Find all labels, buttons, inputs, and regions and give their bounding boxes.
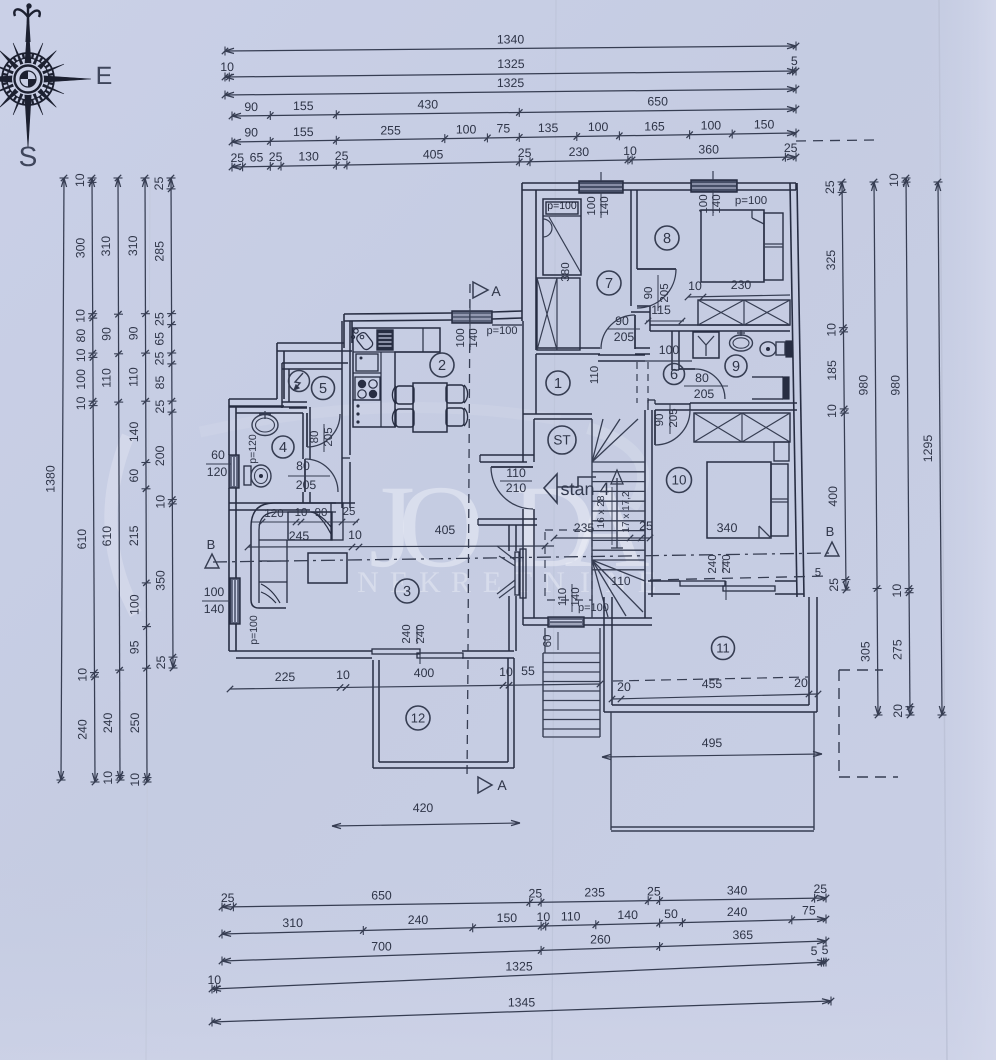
svg-text:ST: ST <box>553 433 570 448</box>
svg-text:20: 20 <box>794 676 808 690</box>
svg-text:10: 10 <box>824 323 838 337</box>
svg-text:10: 10 <box>499 665 513 679</box>
svg-text:5: 5 <box>811 944 818 958</box>
svg-text:N: N <box>357 566 379 599</box>
svg-text:25: 25 <box>823 180 837 194</box>
svg-text:11: 11 <box>716 641 730 656</box>
svg-text:p=100: p=100 <box>248 615 260 645</box>
svg-text:65: 65 <box>250 151 264 165</box>
svg-text:100: 100 <box>455 328 467 347</box>
svg-text:110: 110 <box>611 574 630 588</box>
svg-text:B: B <box>207 537 216 552</box>
svg-text:205: 205 <box>694 387 715 401</box>
svg-text:245: 245 <box>289 529 310 543</box>
svg-text:240: 240 <box>401 624 413 643</box>
svg-text:140: 140 <box>617 908 638 922</box>
svg-text:20: 20 <box>891 704 905 718</box>
svg-text:60: 60 <box>542 635 554 648</box>
svg-text:50: 50 <box>664 907 678 921</box>
svg-text:110: 110 <box>589 366 601 384</box>
svg-text:340: 340 <box>727 883 748 897</box>
svg-text:155: 155 <box>293 99 314 113</box>
svg-text:305: 305 <box>859 641 873 662</box>
svg-text:10: 10 <box>207 973 221 987</box>
svg-text:85: 85 <box>153 376 167 390</box>
svg-text:400: 400 <box>826 486 840 507</box>
svg-text:25: 25 <box>639 519 653 533</box>
svg-text:S: S <box>19 141 38 172</box>
svg-text:610: 610 <box>100 526 114 547</box>
svg-text:210: 210 <box>506 481 527 495</box>
svg-text:1345: 1345 <box>508 996 536 1010</box>
svg-text:230: 230 <box>569 145 590 159</box>
svg-text:95: 95 <box>128 640 142 654</box>
svg-text:1325: 1325 <box>505 960 533 974</box>
svg-text:10: 10 <box>671 473 686 488</box>
svg-text:4: 4 <box>279 440 287 456</box>
svg-text:650: 650 <box>371 889 392 903</box>
svg-text:5: 5 <box>815 567 821 579</box>
svg-text:16 x 28: 16 x 28 <box>596 495 607 528</box>
svg-text:205: 205 <box>668 408 680 427</box>
svg-text:405: 405 <box>435 523 456 537</box>
svg-text:75: 75 <box>802 903 816 917</box>
svg-text:100: 100 <box>659 343 680 357</box>
svg-text:25: 25 <box>153 400 167 414</box>
svg-text:90: 90 <box>315 507 328 519</box>
svg-text:10: 10 <box>825 404 839 418</box>
svg-text:300: 300 <box>73 238 87 259</box>
svg-text:205: 205 <box>614 330 635 344</box>
svg-text:240: 240 <box>707 554 719 573</box>
svg-text:135: 135 <box>538 121 559 135</box>
svg-text:350: 350 <box>154 570 168 591</box>
svg-text:p=100: p=100 <box>487 325 518 337</box>
svg-text:980: 980 <box>857 375 871 396</box>
svg-text:100: 100 <box>588 120 609 134</box>
svg-text:1: 1 <box>554 376 562 392</box>
svg-text:90: 90 <box>244 100 258 114</box>
svg-text:E: E <box>96 62 113 90</box>
svg-text:240: 240 <box>76 719 90 740</box>
svg-text:240: 240 <box>721 554 733 573</box>
svg-text:90: 90 <box>643 287 655 300</box>
svg-text:8: 8 <box>663 231 671 247</box>
svg-text:275: 275 <box>891 639 905 660</box>
svg-text:1380: 1380 <box>44 465 58 493</box>
svg-text:90: 90 <box>127 326 141 340</box>
svg-text:360: 360 <box>698 143 719 157</box>
svg-text:25: 25 <box>230 151 244 165</box>
svg-text:10: 10 <box>101 771 115 785</box>
svg-text:K: K <box>419 566 441 599</box>
svg-text:25: 25 <box>335 149 349 163</box>
svg-text:205: 205 <box>296 478 317 492</box>
svg-text:9: 9 <box>732 359 740 375</box>
svg-text:1340: 1340 <box>497 33 525 47</box>
svg-text:25: 25 <box>784 141 798 155</box>
svg-text:5: 5 <box>319 381 327 397</box>
svg-text:75: 75 <box>497 122 511 136</box>
svg-text:140: 140 <box>127 421 141 442</box>
svg-text:230: 230 <box>731 278 752 292</box>
svg-text:405: 405 <box>423 147 444 161</box>
svg-text:5: 5 <box>822 943 829 957</box>
svg-text:255: 255 <box>380 124 401 138</box>
svg-text:100: 100 <box>204 585 225 599</box>
svg-text:5: 5 <box>791 54 798 68</box>
svg-text:80: 80 <box>695 371 709 385</box>
svg-text:610: 610 <box>75 529 89 550</box>
svg-text:100: 100 <box>74 369 88 390</box>
svg-text:235: 235 <box>574 521 595 535</box>
svg-text:10: 10 <box>128 773 142 787</box>
svg-text:2: 2 <box>438 358 446 374</box>
svg-text:10: 10 <box>153 495 167 509</box>
svg-text:325: 325 <box>824 250 838 271</box>
svg-text:6: 6 <box>670 367 678 383</box>
svg-text:310: 310 <box>126 235 140 256</box>
svg-text:340: 340 <box>717 521 738 535</box>
svg-text:60: 60 <box>211 448 225 462</box>
svg-text:10: 10 <box>295 507 308 519</box>
svg-text:240: 240 <box>408 913 429 927</box>
svg-text:10: 10 <box>887 173 901 187</box>
svg-text:205: 205 <box>323 427 335 446</box>
svg-text:10: 10 <box>537 910 551 924</box>
svg-text:25: 25 <box>153 352 167 366</box>
svg-text:60: 60 <box>127 469 141 483</box>
svg-text:365: 365 <box>733 928 754 942</box>
svg-text:120: 120 <box>207 465 228 479</box>
svg-text:310: 310 <box>99 236 113 257</box>
svg-text:1295: 1295 <box>921 435 935 463</box>
svg-text:20: 20 <box>617 680 631 694</box>
svg-text:10: 10 <box>220 60 234 74</box>
svg-text:10: 10 <box>74 309 88 323</box>
svg-text:A: A <box>491 283 501 299</box>
svg-text:420: 420 <box>413 801 434 815</box>
svg-text:10: 10 <box>73 173 87 187</box>
svg-text:165: 165 <box>644 119 665 133</box>
svg-text:stan 4: stan 4 <box>560 479 609 499</box>
svg-text:980: 980 <box>889 375 903 396</box>
svg-text:A: A <box>497 777 507 793</box>
svg-text:225: 225 <box>275 670 296 684</box>
svg-text:p=100: p=100 <box>547 200 577 212</box>
svg-text:285: 285 <box>152 241 166 262</box>
svg-text:p=120: p=120 <box>247 434 259 464</box>
svg-text:155: 155 <box>293 125 314 139</box>
svg-text:80: 80 <box>296 459 310 473</box>
svg-text:150: 150 <box>754 118 775 132</box>
svg-text:12: 12 <box>411 711 425 726</box>
svg-text:215: 215 <box>127 525 141 546</box>
svg-text:235: 235 <box>584 885 605 899</box>
svg-text:10: 10 <box>336 668 350 682</box>
svg-text:100: 100 <box>698 194 710 213</box>
svg-text:10: 10 <box>688 279 702 293</box>
svg-text:10: 10 <box>348 528 362 542</box>
svg-text:140: 140 <box>599 196 611 215</box>
svg-text:240: 240 <box>727 905 748 919</box>
svg-text:25: 25 <box>813 882 827 896</box>
svg-text:10: 10 <box>74 348 88 362</box>
svg-text:240: 240 <box>415 624 427 643</box>
svg-text:140: 140 <box>711 194 723 213</box>
svg-text:100: 100 <box>456 122 477 136</box>
svg-text:3: 3 <box>403 584 411 600</box>
svg-text:240: 240 <box>101 712 115 733</box>
svg-text:25: 25 <box>343 506 356 518</box>
svg-text:140: 140 <box>204 602 225 616</box>
svg-text:90: 90 <box>244 126 258 140</box>
svg-text:185: 185 <box>825 360 839 381</box>
svg-text:100: 100 <box>701 118 722 132</box>
svg-text:650: 650 <box>647 95 668 109</box>
svg-text:25: 25 <box>154 656 168 670</box>
svg-text:700: 700 <box>371 940 392 954</box>
svg-text:110: 110 <box>100 368 114 388</box>
svg-text:115: 115 <box>651 303 671 317</box>
svg-text:10: 10 <box>623 144 637 158</box>
svg-text:120: 120 <box>264 508 283 520</box>
svg-text:430: 430 <box>418 98 439 112</box>
svg-text:90: 90 <box>615 314 629 328</box>
svg-text:17 x 17,2: 17 x 17,2 <box>621 491 632 533</box>
svg-text:25: 25 <box>221 891 235 905</box>
svg-text:90: 90 <box>654 414 666 427</box>
svg-text:25: 25 <box>529 886 543 900</box>
svg-text:100: 100 <box>586 196 598 215</box>
svg-text:130: 130 <box>298 150 319 164</box>
svg-text:250: 250 <box>128 712 142 733</box>
svg-text:7: 7 <box>605 276 613 292</box>
svg-text:1325: 1325 <box>497 57 525 71</box>
svg-text:p=100: p=100 <box>735 195 767 207</box>
svg-text:E: E <box>483 566 501 599</box>
svg-text:B: B <box>826 524 835 539</box>
svg-text:380: 380 <box>560 262 572 281</box>
svg-text:55: 55 <box>521 664 535 678</box>
svg-text:80: 80 <box>309 431 321 444</box>
svg-text:205: 205 <box>659 283 671 302</box>
svg-text:150: 150 <box>497 911 518 925</box>
svg-text:25: 25 <box>518 146 532 160</box>
svg-text:310: 310 <box>282 916 303 930</box>
svg-text:260: 260 <box>590 933 611 947</box>
svg-text:10: 10 <box>76 668 90 682</box>
svg-text:25: 25 <box>152 177 166 191</box>
svg-text:110: 110 <box>506 466 526 480</box>
svg-text:1325: 1325 <box>497 76 525 90</box>
svg-text:80: 80 <box>74 329 88 343</box>
svg-text:400: 400 <box>414 666 435 680</box>
svg-text:90: 90 <box>100 327 114 341</box>
svg-text:110: 110 <box>127 367 141 387</box>
svg-text:25: 25 <box>269 150 283 164</box>
svg-text:25: 25 <box>153 312 167 326</box>
svg-text:495: 495 <box>702 736 723 750</box>
svg-text:10: 10 <box>890 584 904 598</box>
svg-text:65: 65 <box>153 332 167 346</box>
svg-text:110: 110 <box>557 588 569 606</box>
svg-text:110: 110 <box>561 909 581 923</box>
svg-text:10: 10 <box>74 396 88 410</box>
svg-text:200: 200 <box>153 445 167 466</box>
svg-text:25: 25 <box>827 578 841 592</box>
svg-text:25: 25 <box>647 885 661 899</box>
svg-text:455: 455 <box>702 677 723 691</box>
svg-text:100: 100 <box>127 594 141 615</box>
